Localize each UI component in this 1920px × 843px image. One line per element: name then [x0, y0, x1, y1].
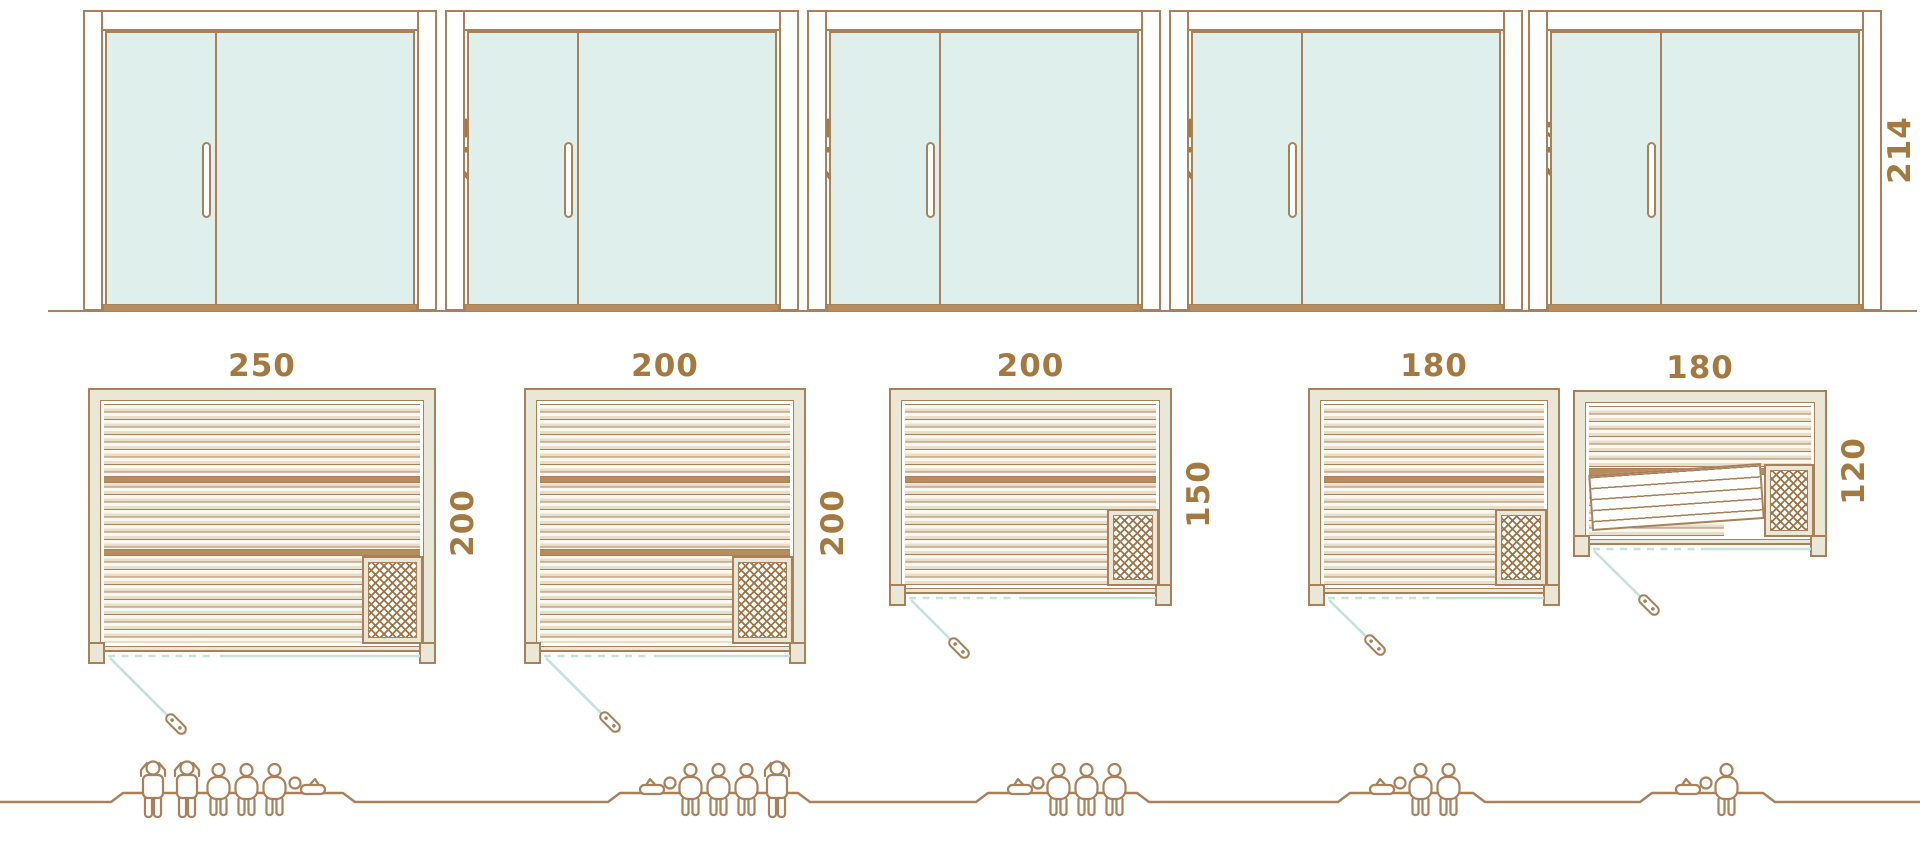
heater [732, 556, 793, 644]
open-door-handle-icon [947, 636, 970, 659]
bench-edge [104, 549, 420, 556]
sauna-interior [901, 400, 1160, 589]
door-frame-right-post [417, 10, 437, 311]
door-elevation-1: 214 [83, 10, 437, 312]
door-swing-indicator [88, 646, 436, 746]
floor-plan-2: 200 200 [524, 388, 806, 652]
capacity-group-sauna-180x120 [1676, 764, 1738, 815]
heater [362, 556, 423, 644]
door-sill [827, 304, 1141, 312]
plan-depth-dimension: 120 [1825, 423, 1883, 519]
ground-line [0, 793, 1920, 802]
plan-width-dimension: 200 [891, 348, 1170, 384]
door-handle [1647, 142, 1656, 218]
door-sill [103, 304, 417, 312]
heater [1107, 509, 1159, 586]
bench-slats [1589, 406, 1811, 468]
door-frame-header [1187, 10, 1505, 31]
glass-door-panels [1191, 31, 1501, 306]
door-frame-header [463, 10, 781, 31]
door-panel-divider [1301, 33, 1303, 304]
plan-width-dimension: 180 [1310, 348, 1558, 384]
floor-plan-5: 180 120 [1573, 390, 1827, 545]
door-frame-right-post [1141, 10, 1161, 311]
sauna-interior [1585, 402, 1815, 540]
door-frame-left-post [807, 10, 827, 311]
door-handle [202, 142, 211, 218]
door-frame-right-post [779, 10, 799, 311]
open-door-handle-icon [598, 710, 621, 733]
door-frame-header [825, 10, 1143, 31]
door-elevation-4: 214 [1169, 10, 1523, 312]
door-handle [1288, 142, 1297, 218]
heater-grille [1501, 515, 1541, 580]
capacity-group-sauna-200x150 [1008, 764, 1126, 815]
bench-edge [540, 476, 790, 483]
sauna-interior [536, 400, 794, 647]
door-frame-left-post [445, 10, 465, 311]
glass-door-panels [467, 31, 777, 306]
sauna-interior [1320, 400, 1548, 589]
bench-edge [104, 476, 420, 483]
capacity-group-sauna-180x150 [1370, 764, 1460, 815]
door-elevation-3: 214 [807, 10, 1161, 312]
door-swing-indicator [1308, 588, 1560, 668]
door-handle [564, 142, 573, 218]
heater-grille [1113, 515, 1153, 580]
capacity-pictogram-strip [0, 743, 1920, 843]
door-swing-indicator [889, 588, 1172, 668]
door-height-dimension: 214 [1878, 95, 1920, 205]
door-sill [465, 304, 779, 312]
bench-edge [905, 476, 1156, 483]
door-panel-divider [577, 33, 579, 304]
door-sill [1189, 304, 1503, 312]
door-handle [926, 142, 935, 218]
bench-edge [1324, 476, 1544, 483]
floor-plan-4: 180 150 [1308, 388, 1560, 594]
door-frame-left-post [83, 10, 103, 311]
open-door-handle-icon [1363, 633, 1386, 656]
capacity-group-sauna-250x200 [141, 762, 325, 818]
heater-grille [1770, 470, 1808, 531]
door-swing-indicator [524, 646, 806, 746]
door-frame-header [1546, 10, 1864, 31]
door-frame-left-post [1528, 10, 1548, 311]
open-door-handle-icon [1637, 593, 1660, 616]
door-panel-divider [215, 33, 217, 304]
door-swing-indicator [1573, 539, 1827, 634]
floor-plan-1: 250 200 [88, 388, 436, 652]
plan-width-dimension: 200 [526, 348, 804, 384]
sauna-size-diagram: 214 214 214 214 [0, 0, 1920, 843]
door-elevation-5: 214 [1528, 10, 1882, 312]
floor-plan-3: 200 150 [889, 388, 1172, 594]
glass-door-panels [1550, 31, 1860, 306]
door-frame-right-post [1503, 10, 1523, 311]
sauna-interior [100, 400, 424, 647]
plan-depth-dimension: 200 [804, 475, 862, 571]
door-frame-left-post [1169, 10, 1189, 311]
plan-depth-dimension: 200 [434, 475, 492, 571]
door-elevation-2: 214 [445, 10, 799, 312]
plan-width-dimension: 250 [90, 348, 434, 384]
glass-door-panels [829, 31, 1139, 306]
glass-door-panels [105, 31, 415, 306]
heater [1764, 464, 1814, 537]
heater-grille [738, 562, 787, 638]
tilted-lounger-bench [1588, 463, 1764, 531]
door-sill [1548, 304, 1862, 312]
open-door-handle-icon [164, 712, 187, 735]
plan-width-dimension: 180 [1575, 350, 1825, 386]
capacity-group-sauna-200x200 [640, 762, 789, 818]
door-panel-divider [939, 33, 941, 304]
door-frame-header [101, 10, 419, 31]
plan-depth-dimension: 150 [1170, 446, 1228, 542]
heater-grille [368, 562, 417, 638]
door-panel-divider [1660, 33, 1662, 304]
heater [1495, 509, 1547, 586]
bench-edge [540, 549, 790, 556]
